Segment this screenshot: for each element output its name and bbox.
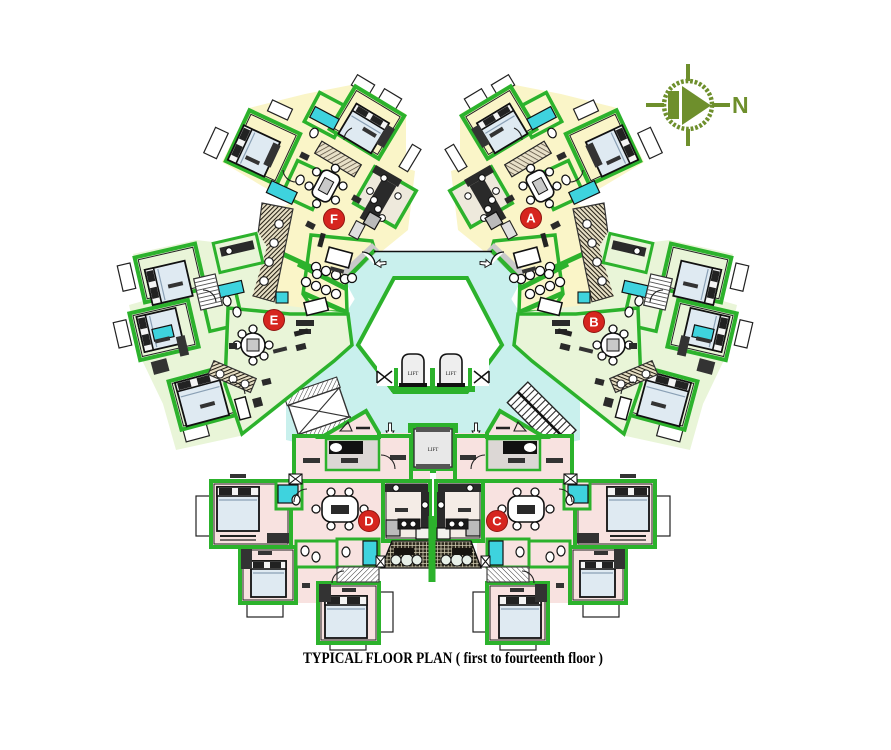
svg-text:B: B bbox=[589, 315, 598, 330]
svg-text:C: C bbox=[492, 514, 502, 529]
svg-text:LIFT: LIFT bbox=[428, 448, 439, 453]
svg-text:D: D bbox=[364, 514, 373, 529]
svg-text:F: F bbox=[330, 212, 338, 227]
svg-text:A: A bbox=[526, 211, 536, 226]
svg-text:LIFT: LIFT bbox=[408, 372, 419, 377]
svg-text:N: N bbox=[732, 92, 749, 118]
svg-text:LIFT: LIFT bbox=[446, 372, 457, 377]
svg-text:TYPICAL FLOOR PLAN ( first to: TYPICAL FLOOR PLAN ( first to fourteenth… bbox=[303, 650, 603, 667]
svg-text:E: E bbox=[270, 313, 279, 328]
